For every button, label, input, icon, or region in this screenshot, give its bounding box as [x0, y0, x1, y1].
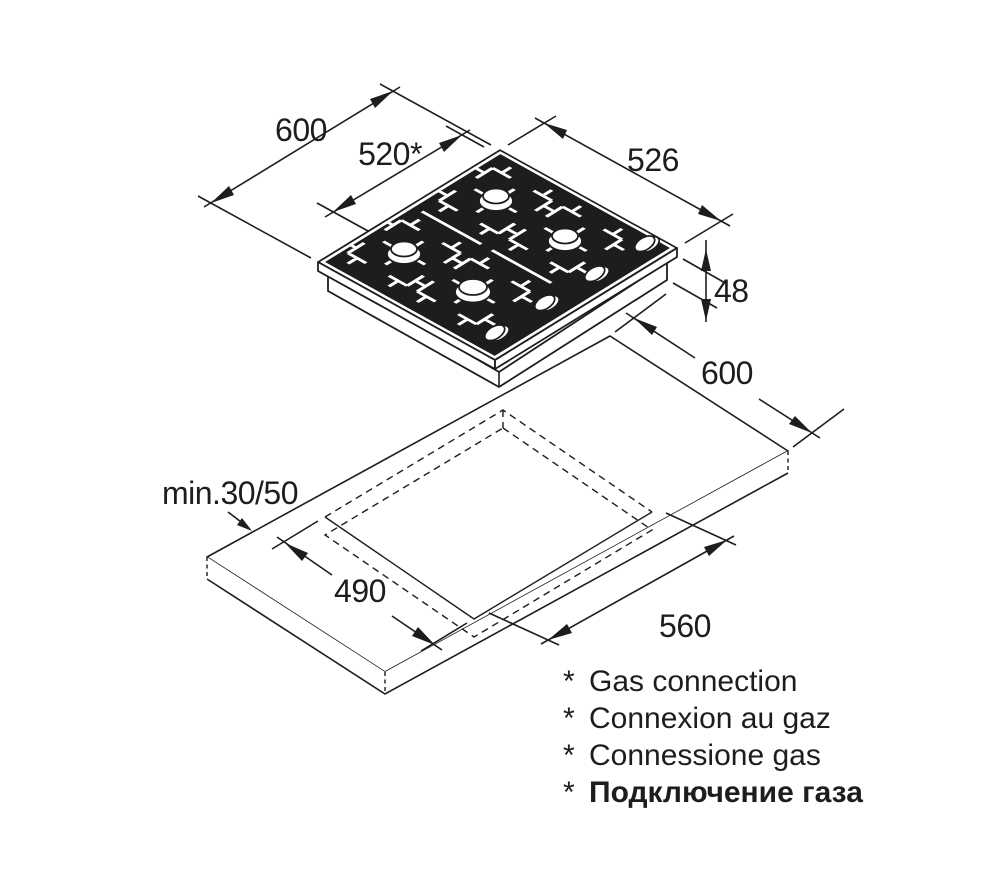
footnote-text: Gas connection [589, 665, 797, 698]
arrowhead [701, 299, 711, 321]
arrowhead [370, 91, 393, 108]
arrowhead [333, 195, 356, 212]
extension-line [685, 214, 733, 243]
arrowhead [789, 416, 812, 433]
footnote-legend: *Gas connection *Connexion au gaz *Conne… [563, 665, 863, 809]
extension-line [673, 283, 717, 308]
footnote-line: *Подключение газа [563, 776, 863, 809]
extension-line [508, 116, 556, 145]
dimension-label: 600 [275, 112, 327, 148]
burner-cap [483, 189, 509, 204]
footnote-line: *Connexion au gaz [563, 702, 831, 735]
dimension-label: 490 [334, 573, 386, 609]
burner-cap [552, 229, 578, 244]
arrowhead [704, 540, 727, 556]
footnote-line: *Gas connection [563, 665, 797, 698]
footnote-marker: * [563, 702, 575, 735]
footnote-line: *Connessione gas [563, 739, 821, 772]
extension-line [198, 196, 311, 258]
burner-cap [391, 242, 417, 257]
technical-drawing: 600 520* 526 48 [0, 0, 1000, 876]
burner-left [387, 242, 421, 265]
installation-diagram-page: 600 520* 526 48 [0, 0, 1000, 876]
footnote-text: Подключение газа [589, 776, 863, 809]
dimension-label: 526 [627, 142, 679, 178]
arrowhead [701, 249, 711, 271]
dimension-label: 48 [714, 273, 749, 309]
dimension-label: 600 [701, 355, 753, 391]
arrowhead [211, 186, 234, 203]
dim-hob-height: 48 [673, 240, 749, 322]
arrowhead [548, 624, 572, 640]
burner-right [548, 229, 582, 252]
footnote-marker: * [563, 665, 575, 698]
footnote-text: Connessione gas [589, 739, 821, 772]
footnote-text: Connexion au gaz [589, 702, 831, 735]
arrowhead [698, 205, 721, 221]
footnote-marker: * [563, 739, 575, 772]
dimension-label: 520* [358, 136, 422, 172]
footnote-marker: * [563, 776, 575, 809]
dimension-label: 560 [659, 608, 711, 644]
burner-front [455, 279, 491, 303]
burner-cap [459, 279, 487, 295]
arrowhead [439, 135, 462, 152]
arrowhead [634, 318, 657, 335]
arrowhead [544, 123, 567, 139]
burner-back [479, 189, 513, 212]
dimension-label: min.30/50 [162, 475, 298, 511]
